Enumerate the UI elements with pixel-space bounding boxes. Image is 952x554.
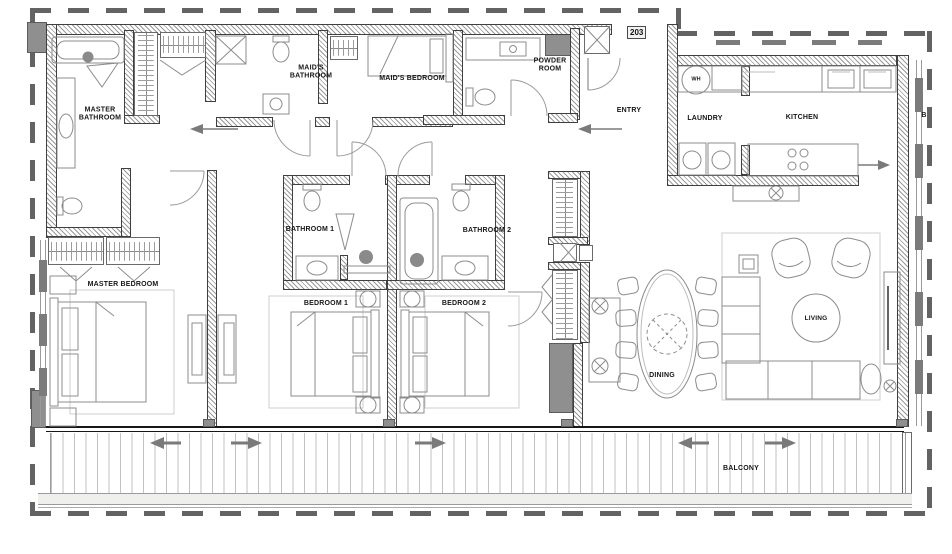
sink-counter [263, 94, 289, 114]
rug [425, 296, 519, 408]
tv-console [884, 272, 900, 364]
door-swings [170, 80, 547, 326]
sink-counter [442, 256, 488, 280]
pillow [353, 317, 367, 353]
entry-door-swing [588, 58, 620, 90]
lamp [404, 397, 420, 413]
label-entry: ENTRY [617, 107, 641, 115]
toilet-tank [452, 184, 470, 190]
armchair [769, 235, 813, 281]
rug [269, 296, 363, 408]
blanket-fold [96, 302, 114, 402]
dining-chair [617, 276, 639, 295]
bed-headboard [50, 298, 58, 406]
dining-chair [695, 372, 717, 391]
laundry-counter [712, 66, 742, 90]
dresser [218, 315, 236, 383]
arrow-right-icon [248, 437, 262, 449]
bed [291, 312, 371, 396]
label-grid-b: B [921, 112, 926, 120]
label-kitchen: KITCHEN [786, 114, 819, 122]
bed [368, 36, 446, 76]
door-swing [508, 292, 542, 326]
sink [307, 261, 327, 275]
sofa-bottom [726, 361, 860, 399]
toilet-tank [303, 184, 321, 190]
toilet-bowl [475, 89, 495, 105]
hall-closet-details [542, 243, 620, 382]
kitchen-counter-top [678, 66, 896, 92]
arrow-left-icon [578, 124, 591, 134]
shower-bench [344, 266, 390, 273]
rain-shower-head-icon [359, 250, 373, 264]
door-swing [398, 142, 432, 176]
lamp [360, 291, 376, 307]
label-bathroom-2: BATHROOM 2 [463, 227, 512, 235]
maids-bathroom-fixtures [216, 36, 289, 114]
toilet-bowl [453, 191, 469, 211]
ottoman [861, 364, 881, 394]
label-master-bathroom: MASTER BATHROOM [71, 107, 129, 124]
entry-fixtures [584, 26, 620, 90]
master-bedroom-furniture [50, 276, 236, 426]
arrow-right-icon [432, 437, 446, 449]
shower-cone [336, 214, 354, 250]
door-swing [337, 120, 373, 156]
cooktop-burner [788, 162, 796, 170]
sofa-left [722, 277, 760, 363]
dining-chair [697, 309, 718, 326]
rain-shower-head-icon [83, 52, 94, 63]
pillow [430, 39, 443, 73]
robe-hook [87, 63, 118, 87]
nightstand [50, 408, 76, 426]
rug [70, 290, 174, 414]
label-master-bedroom: MASTER BEDROOM [88, 281, 159, 289]
side-table [739, 255, 758, 273]
dining-chair [615, 309, 636, 326]
blanket-fold [380, 36, 398, 74]
nightstand [50, 276, 76, 294]
cooktop-burner [800, 149, 808, 157]
toilet-bowl [304, 191, 320, 211]
lamp [360, 397, 376, 413]
bed [409, 312, 489, 396]
sink [270, 98, 282, 110]
label-maids-bathroom: MAID'S BATHROOM [286, 65, 336, 82]
label-bedroom-2: BEDROOM 2 [442, 300, 486, 308]
dresser [188, 315, 206, 383]
dining-chair [695, 276, 717, 295]
label-powder-room: POWDER ROOM [529, 58, 571, 75]
arrow-right-icon [782, 437, 796, 449]
toilet-bowl [273, 42, 289, 62]
bed [58, 302, 146, 402]
arrow-left-icon [190, 124, 203, 134]
closet-front [160, 60, 206, 75]
blanket-fold [297, 312, 315, 396]
entry-closet-x [584, 26, 610, 54]
label-maids-bedroom: MAID'S BEDROOM [379, 75, 445, 83]
door-swing [274, 120, 310, 156]
armchair [829, 235, 873, 281]
label-dining: DINING [649, 372, 675, 380]
rug [722, 233, 880, 400]
rain-shower-head-icon [410, 253, 424, 267]
door-swing [170, 171, 204, 205]
sink [500, 42, 526, 56]
dining-chair [615, 341, 636, 358]
pillow [353, 356, 367, 392]
floor-plan: MASTER BATHROOM MAID'S BATHROOM MAID'S B… [0, 0, 952, 554]
furniture-layer [0, 0, 952, 554]
toilet-tank [466, 88, 473, 106]
unit-number-badge: 203 [627, 26, 646, 39]
lamp [404, 291, 420, 307]
cooktop-burner [788, 149, 796, 157]
bed-headboard [446, 34, 453, 82]
sink-counter [296, 256, 338, 280]
arrow-left-icon [678, 437, 692, 449]
cooktop-burner [800, 162, 808, 170]
master-bathroom-fixtures [52, 37, 206, 281]
bed-headboard [401, 310, 409, 398]
arrow-right-icon [878, 160, 890, 170]
toilet-tank [273, 36, 289, 42]
label-bedroom-1: BEDROOM 1 [304, 300, 348, 308]
bedroom2-furniture [400, 291, 519, 413]
label-bathroom-1: BATHROOM 1 [286, 226, 335, 234]
label-water-heater: WH [691, 77, 700, 84]
bifold-door [542, 275, 552, 324]
arrow-left-icon [150, 437, 164, 449]
toilet-bowl [62, 198, 82, 214]
bedroom1-furniture [269, 291, 380, 413]
door-swing [511, 80, 547, 116]
label-laundry: LAUNDRY [687, 115, 722, 123]
door-swing [352, 142, 386, 176]
closet-front [118, 267, 150, 281]
kitchen-fixtures [678, 66, 896, 201]
sink [455, 261, 475, 275]
breakfast-console [733, 186, 799, 201]
label-balcony: BALCONY [723, 465, 759, 473]
dining-chair [697, 341, 718, 358]
shaft-x [560, 243, 577, 262]
blanket-fold [465, 312, 483, 396]
label-living: LIVING [805, 315, 828, 323]
bed-headboard [371, 310, 379, 398]
